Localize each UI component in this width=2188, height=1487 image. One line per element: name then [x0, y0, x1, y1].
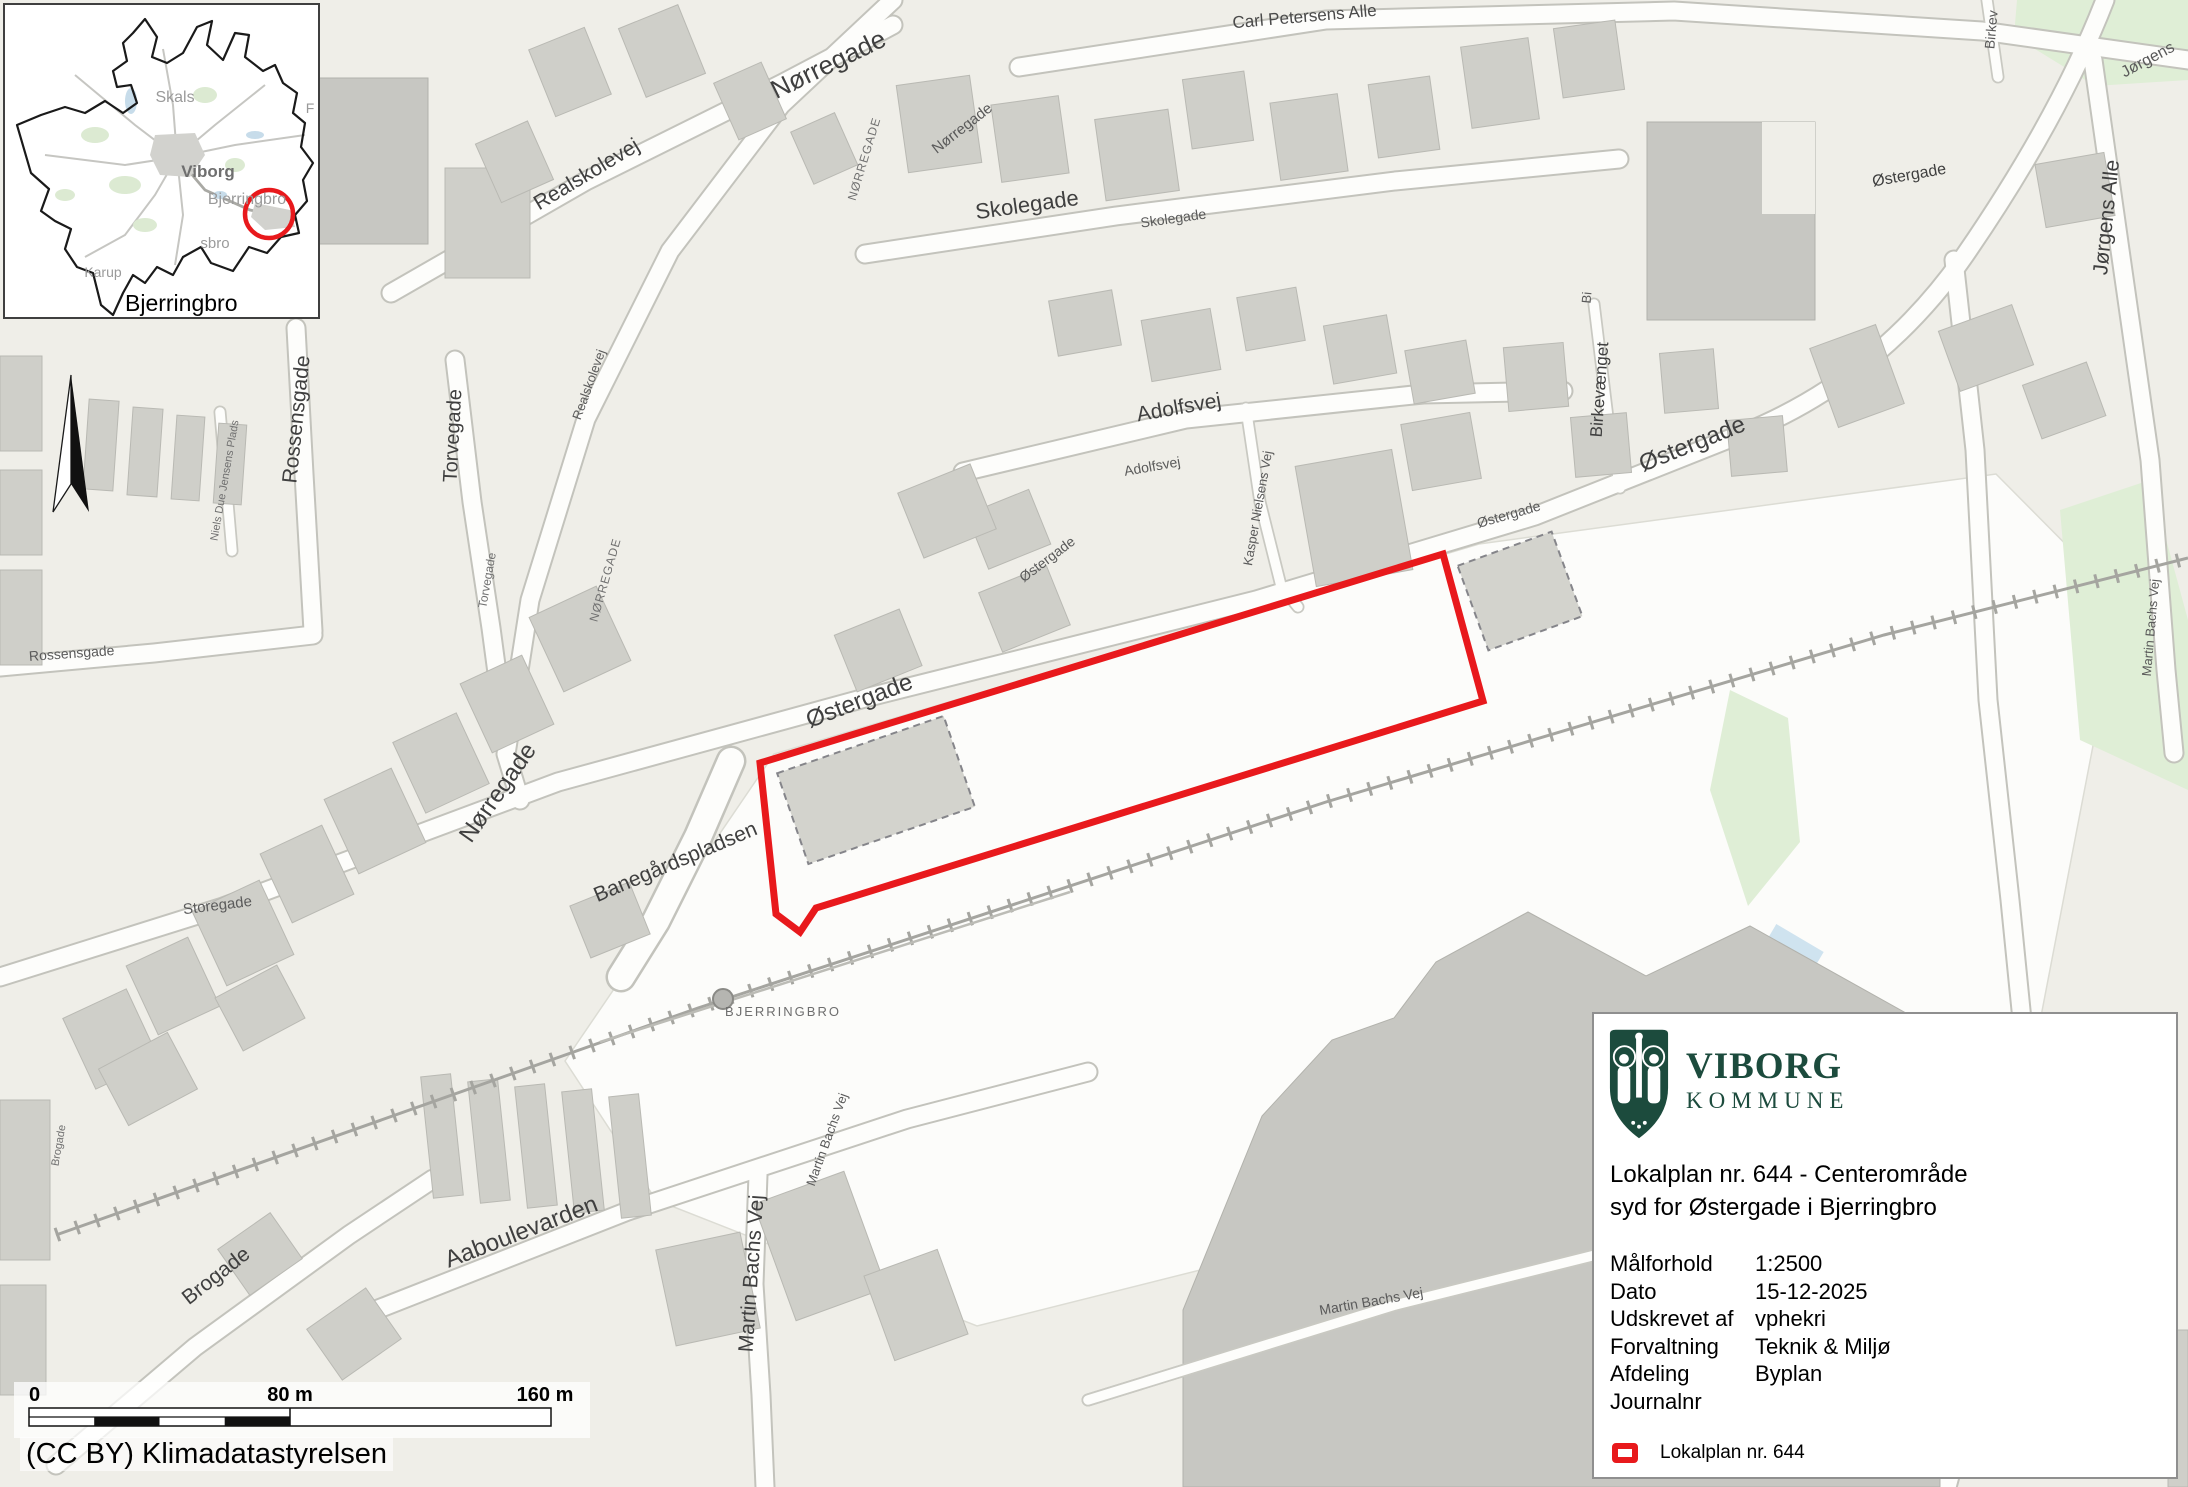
inset-caption: Bjerringbro — [125, 290, 238, 316]
detail-value: Byplan — [1755, 1360, 1822, 1388]
legend-label: Lokalplan nr. 644 — [1660, 1442, 1805, 1464]
detail-value: vphekri — [1755, 1305, 1826, 1333]
street-label: Bi — [1579, 291, 1595, 304]
north-arrow-icon — [48, 372, 94, 518]
viborg-coat-of-arms-icon — [1608, 1026, 1670, 1142]
detail-label: Dato — [1610, 1278, 1755, 1306]
brand-name: VIBORG — [1686, 1048, 1849, 1086]
info-panel: VIBORG KOMMUNE Lokalplan nr. 644 - Cente… — [1592, 1012, 2178, 1479]
detail-row: AfdelingByplan — [1610, 1360, 2176, 1388]
inset-label-sbro: sbro — [200, 235, 229, 252]
scale-mid-label: 80 m — [267, 1384, 313, 1406]
brand-subtitle: KOMMUNE — [1686, 1086, 1849, 1116]
detail-value: 15-12-2025 — [1755, 1278, 1868, 1306]
inset-label-skals: Skals — [155, 89, 194, 106]
street-label: Brogade — [50, 1124, 69, 1167]
detail-label: Forvaltning — [1610, 1333, 1755, 1361]
detail-row: Journalnr — [1610, 1388, 2176, 1416]
street-label: Birkev — [1981, 9, 2000, 49]
legend: Lokalplan nr. 644 — [1612, 1442, 1805, 1464]
scale-start-label: 0 — [29, 1384, 40, 1406]
detail-value: 1:2500 — [1755, 1250, 1822, 1278]
scale-end-label: 160 m — [517, 1384, 574, 1406]
detail-row: Dato15-12-2025 — [1610, 1278, 2176, 1306]
lokalplan-legend-icon — [1612, 1443, 1638, 1463]
street-label: Nørregade — [766, 23, 891, 104]
inset-canvas: Skals Viborg Bjerringbro Karup sbro F Bj… — [5, 5, 318, 317]
street-label: Østergade — [1871, 161, 1948, 191]
detail-value: Teknik & Miljø — [1755, 1333, 1891, 1361]
attribution: (CC BY) Klimadatastyrelsen — [20, 1438, 393, 1471]
street-label: BJERRINGBRO — [725, 1004, 841, 1019]
detail-label: Udskrevet af — [1610, 1305, 1755, 1333]
inset-label-karup: Karup — [84, 264, 122, 280]
overview-inset-map: Skals Viborg Bjerringbro Karup sbro F Bj… — [3, 3, 320, 319]
plan-title: Lokalplan nr. 644 - Centerområde syd for… — [1610, 1158, 2162, 1224]
detail-row: ForvaltningTeknik & Miljø — [1610, 1333, 2176, 1361]
detail-label: Målforhold — [1610, 1250, 1755, 1278]
detail-label: Afdeling — [1610, 1360, 1755, 1388]
plan-details: Målforhold1:2500Dato15-12-2025Udskrevet … — [1610, 1250, 2176, 1415]
street-label: Adolfsvej — [1123, 453, 1182, 479]
detail-label: Journalnr — [1610, 1388, 1755, 1416]
inset-label-viborg: Viborg — [181, 162, 235, 181]
inset-label-bjerringbro: Bjerringbro — [208, 191, 286, 208]
inset-label-f: F — [306, 100, 315, 116]
lokalplan-map-page: Carl Petersens AlleNørregadeNørregadeNØR… — [0, 0, 2188, 1487]
viborg-kommune-brand: VIBORG KOMMUNE — [1608, 1026, 2176, 1142]
detail-row: Udskrevet afvphekri — [1610, 1305, 2176, 1333]
scale-bar: 0 80 m 160 m — [14, 1382, 590, 1438]
detail-row: Målforhold1:2500 — [1610, 1250, 2176, 1278]
